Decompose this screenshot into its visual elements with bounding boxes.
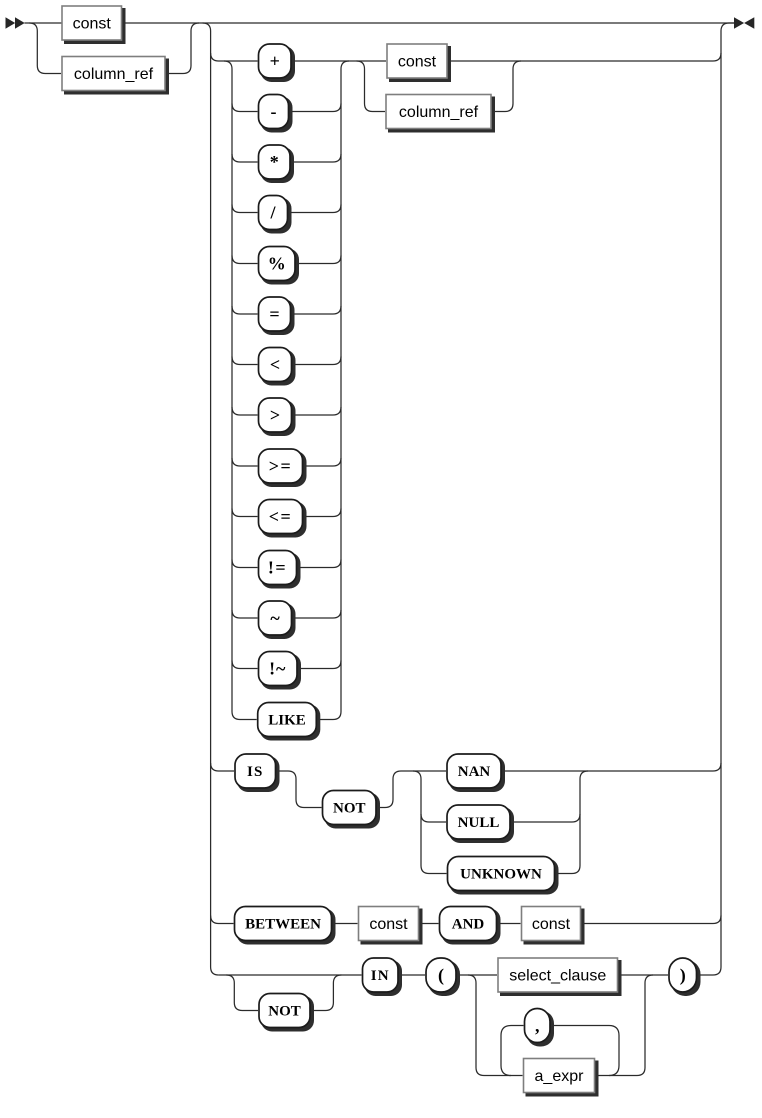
- svg-text:NOT: NOT: [268, 1004, 301, 1020]
- svg-text:const: const: [369, 916, 408, 933]
- svg-text:,: ,: [535, 1015, 540, 1035]
- svg-text:a_expr: a_expr: [535, 1068, 585, 1085]
- svg-text:!~: !~: [269, 658, 286, 678]
- svg-text:~: ~: [270, 608, 280, 628]
- svg-text:<: <: [270, 354, 280, 374]
- svg-text:(: (: [438, 965, 444, 986]
- svg-text:UNKNOWN: UNKNOWN: [460, 867, 542, 883]
- svg-text:const: const: [532, 916, 571, 933]
- svg-text:*: *: [270, 152, 279, 172]
- svg-text:const: const: [398, 54, 437, 71]
- svg-text:NAN: NAN: [458, 764, 491, 780]
- svg-text:%: %: [268, 253, 286, 273]
- svg-text:BETWEEN: BETWEEN: [245, 917, 321, 933]
- svg-text:NOT: NOT: [333, 801, 366, 817]
- svg-text:): ): [680, 965, 686, 986]
- svg-text:-: -: [271, 101, 277, 121]
- svg-text:IS: IS: [247, 764, 264, 780]
- svg-text:<=: <=: [269, 506, 293, 526]
- svg-text:NULL: NULL: [458, 815, 500, 831]
- svg-text:/: /: [269, 202, 276, 222]
- svg-text:column_ref: column_ref: [399, 104, 479, 121]
- svg-text:+: +: [270, 51, 280, 71]
- svg-text:select_clause: select_clause: [509, 968, 606, 985]
- svg-text:>: >: [270, 405, 280, 425]
- svg-text:=: =: [269, 304, 279, 324]
- svg-text:column_ref: column_ref: [74, 66, 154, 83]
- svg-text:LIKE: LIKE: [268, 713, 306, 729]
- svg-text:>=: >=: [269, 456, 293, 476]
- svg-text:IN: IN: [371, 968, 390, 984]
- svg-text:AND: AND: [452, 917, 485, 933]
- svg-text:!=: !=: [268, 557, 287, 577]
- svg-text:const: const: [73, 16, 112, 33]
